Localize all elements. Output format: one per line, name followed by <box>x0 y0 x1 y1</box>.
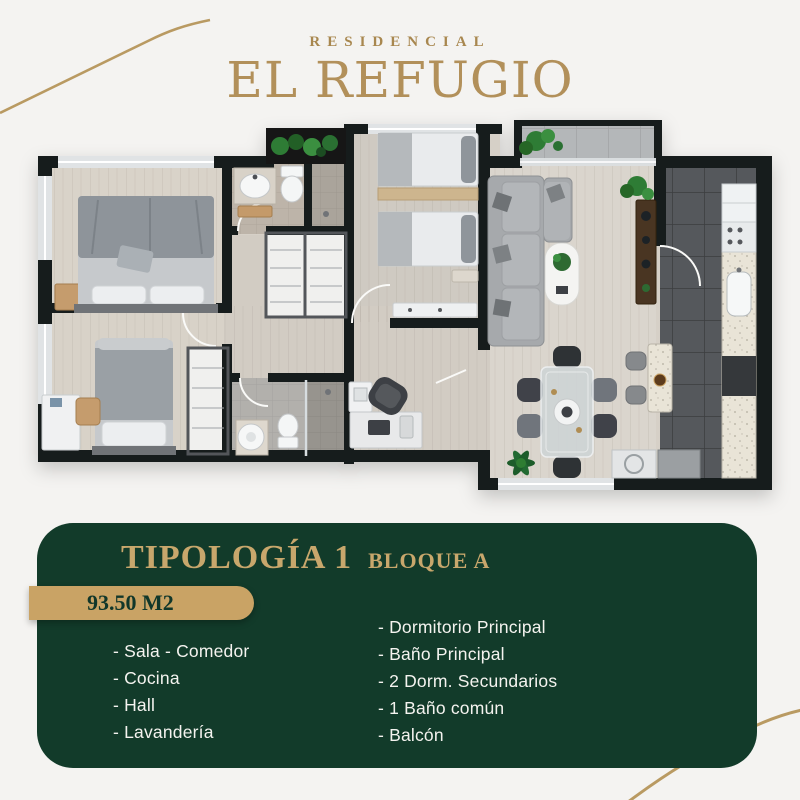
feature-item: - Balcón <box>378 722 557 749</box>
feature-item: - Hall <box>113 692 249 719</box>
living-room <box>488 176 656 346</box>
third-bedroom <box>42 338 176 455</box>
feature-item: - Sala - Comedor <box>113 638 249 665</box>
walls <box>38 120 772 490</box>
master-bathroom <box>234 166 329 217</box>
floorplan <box>38 120 772 490</box>
windows <box>38 124 656 490</box>
brand-name: EL REFUGIO <box>0 54 800 107</box>
kitchen <box>612 184 756 478</box>
features-list-left: - Sala - Comedor - Cocina - Hall - Lavan… <box>113 638 249 746</box>
door-swings <box>183 203 700 406</box>
plants <box>507 129 563 477</box>
closets <box>188 233 346 454</box>
feature-item: - Lavandería <box>113 719 249 746</box>
apartment-footprint <box>38 120 772 490</box>
features-list-right: - Dormitorio Principal - Baño Principal … <box>378 614 557 749</box>
typology-title: TIPOLOGÍA 1BLOQUE A <box>121 539 490 577</box>
feature-item: - 1 Baño común <box>378 695 557 722</box>
poster: RESIDENCIAL EL REFUGIO TIPOLOGÍA 1BLOQUE… <box>0 0 800 800</box>
room-floors <box>50 124 756 480</box>
brand-logo: RESIDENCIAL EL REFUGIO <box>0 34 800 107</box>
master-bed <box>55 196 218 313</box>
feature-item: - Baño Principal <box>378 641 557 668</box>
info-panel: TIPOLOGÍA 1BLOQUE A 93.50 M2 - Sala - Co… <box>37 523 757 768</box>
kitchen-island <box>626 344 672 412</box>
feature-item: - Dormitorio Principal <box>378 614 557 641</box>
area-badge: 93.50 M2 <box>29 586 254 620</box>
planter-box <box>266 128 346 164</box>
common-bathroom <box>236 380 331 456</box>
brand-kicker: RESIDENCIAL <box>0 34 800 51</box>
feature-item: - 2 Dorm. Secundarios <box>378 668 557 695</box>
block-name: BLOQUE A <box>368 548 490 573</box>
secondary-bedroom <box>378 133 478 317</box>
study-nook <box>349 373 422 448</box>
dining-set <box>517 346 617 478</box>
feature-item: - Cocina <box>113 665 249 692</box>
typology-name: TIPOLOGÍA 1 <box>121 539 352 576</box>
